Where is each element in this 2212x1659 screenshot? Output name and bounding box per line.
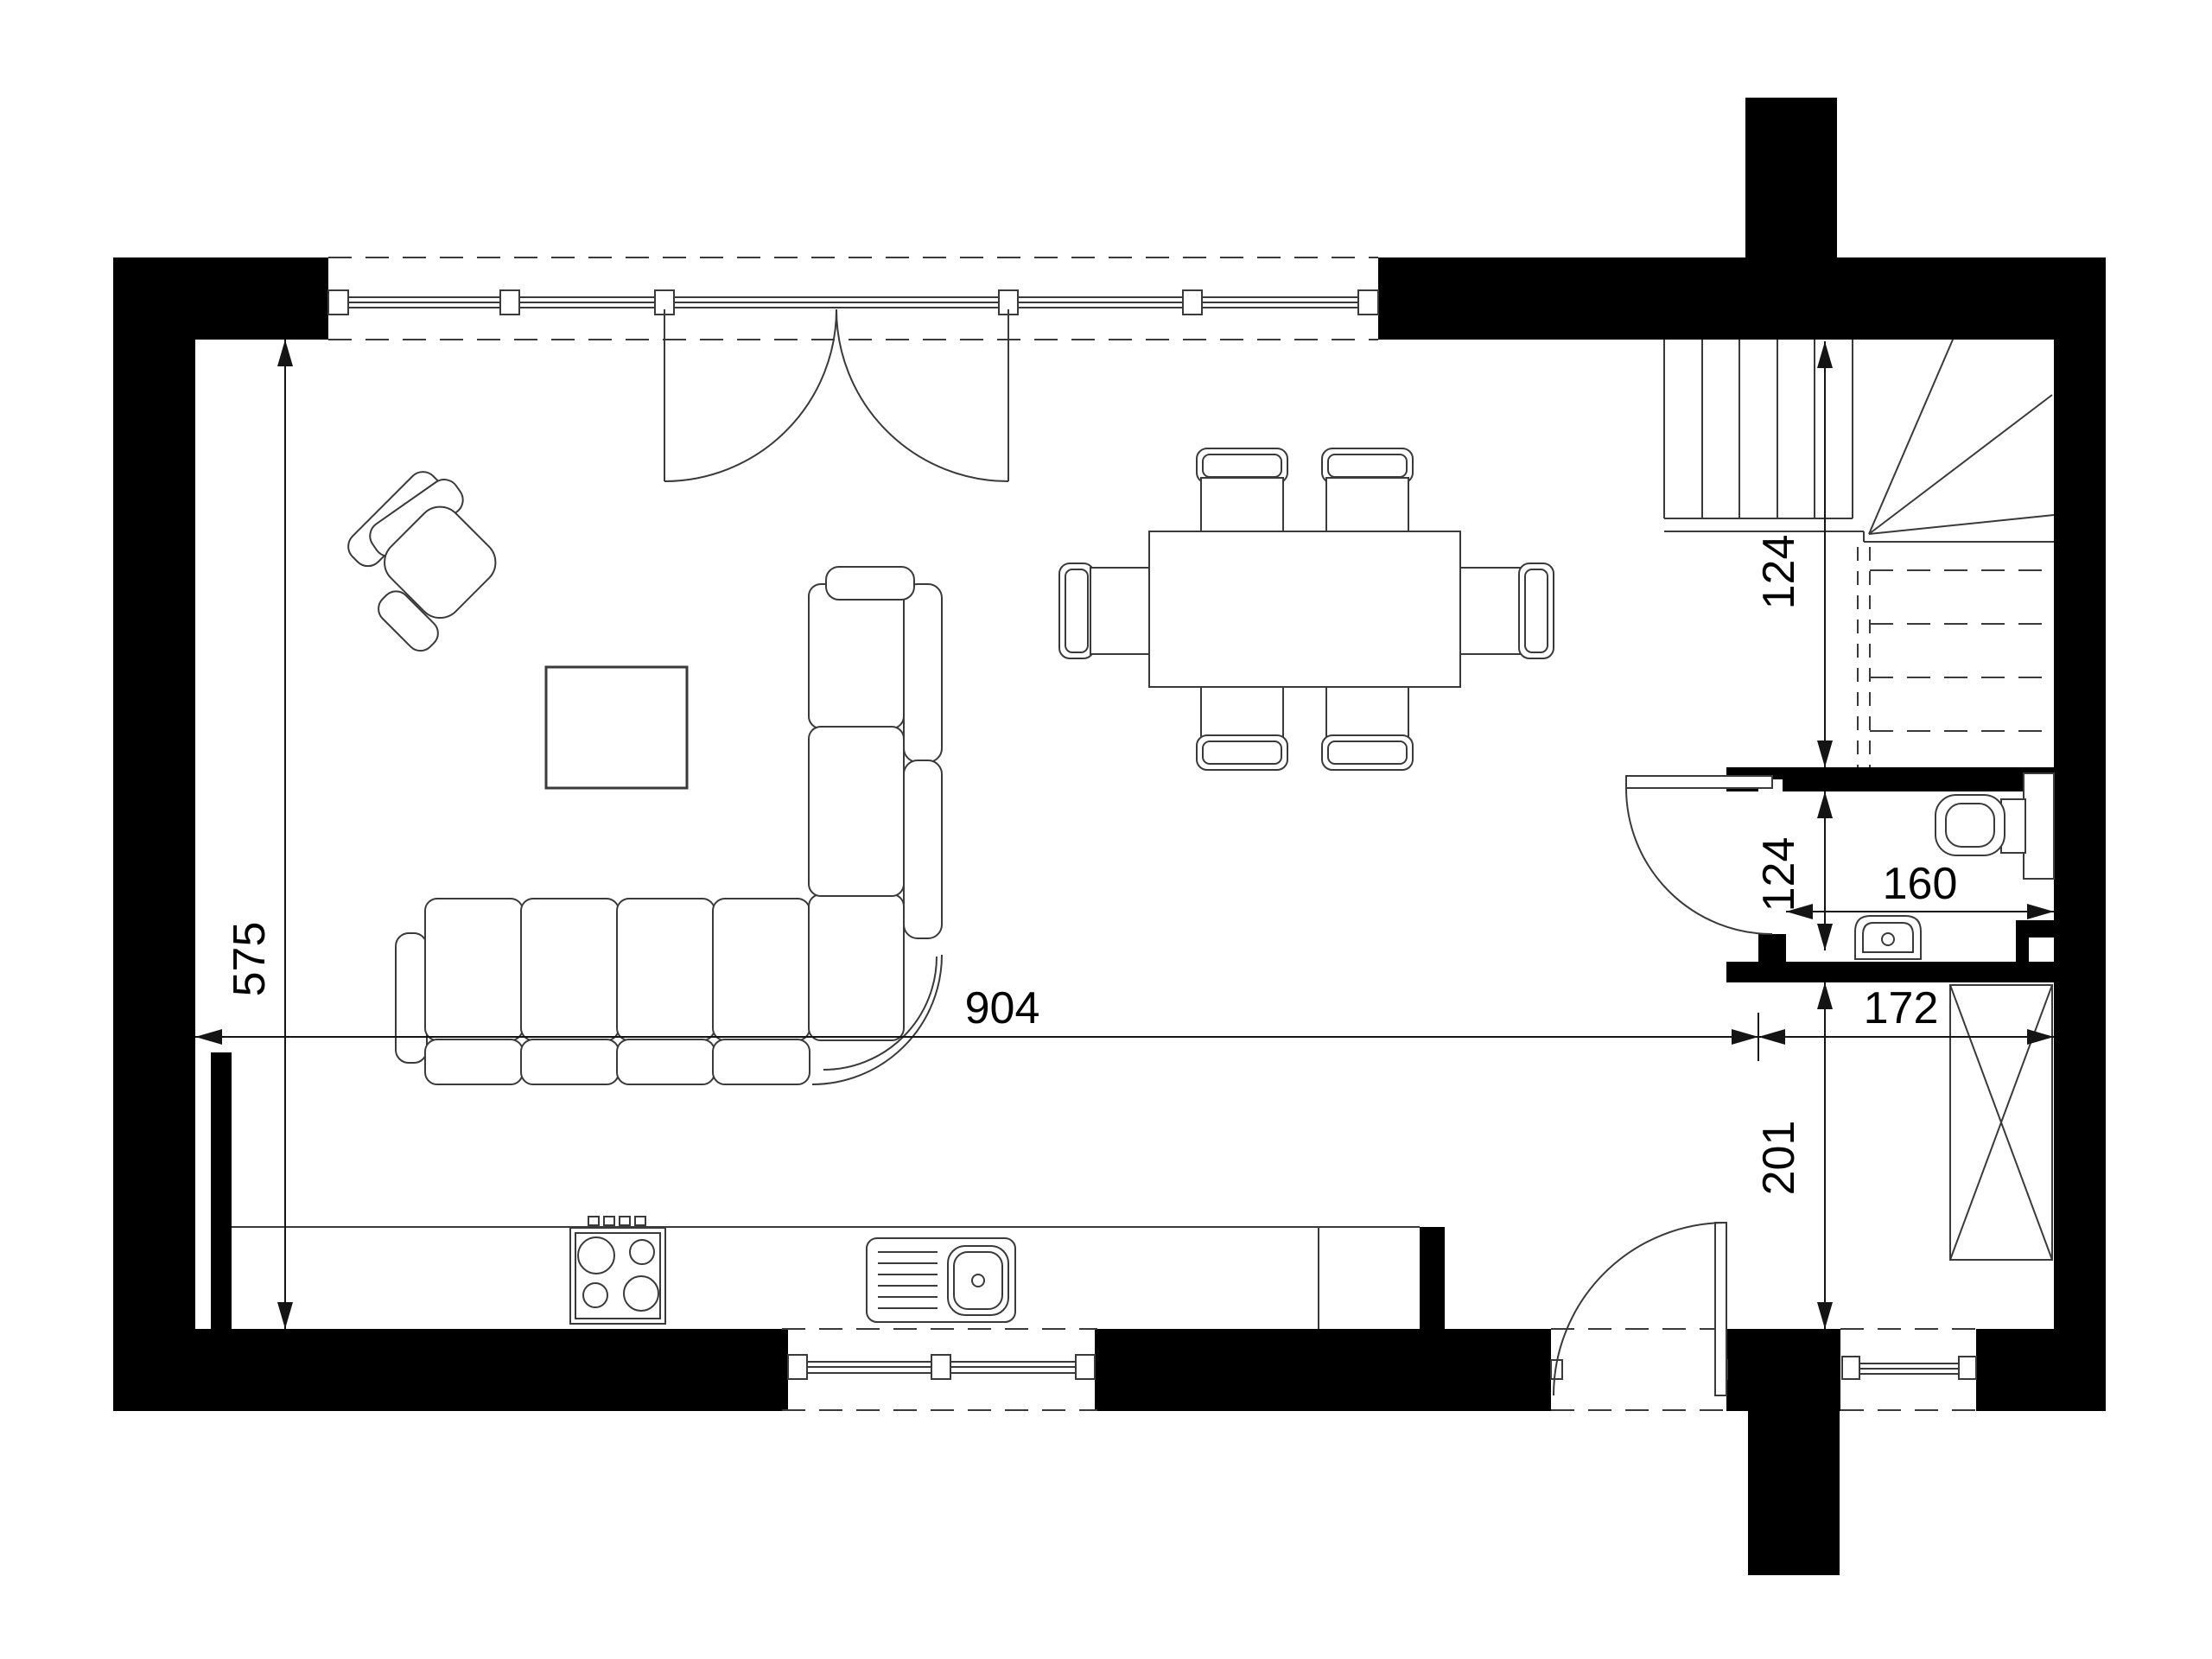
kitchen-run <box>232 1217 1445 1329</box>
dimension-124-bathroom: 124 <box>1754 791 1833 950</box>
sofa-back-cushion <box>617 1039 715 1084</box>
stove <box>570 1217 665 1324</box>
window-mullion <box>931 1355 950 1379</box>
bathroom-door <box>1626 776 1772 934</box>
winder-tread-line <box>1869 395 2052 534</box>
dining-set <box>1059 448 1554 770</box>
staircase <box>1664 340 2054 767</box>
entry-door-leaf <box>1715 1223 1726 1395</box>
sofa-corner-seat <box>809 894 904 1040</box>
kitchen-window <box>782 1329 1097 1410</box>
french-double-door <box>664 309 1008 481</box>
hall-window <box>1840 1329 1976 1410</box>
floor-plan-drawing: 575 904 172 124 124 160 201 <box>0 0 2212 1659</box>
kitchen-side-partition <box>211 1052 232 1329</box>
dimension-172: 172 <box>1758 983 2054 1061</box>
chimney-block <box>1745 98 1837 262</box>
sofa-back-cushion <box>425 1039 523 1084</box>
dim-label-124-stairs: 124 <box>1754 535 1804 610</box>
exterior-walls <box>113 98 2106 1575</box>
dining-chair-bottom-2 <box>1322 677 1413 770</box>
sink-unit <box>867 1238 1015 1322</box>
dining-chair-top-1 <box>1197 448 1287 542</box>
entry-porch-block <box>1748 1411 1840 1575</box>
bottom-wall-door-pier <box>1726 1329 1840 1411</box>
window-end-cap <box>788 1355 807 1379</box>
kitchen-sink <box>867 1238 1015 1322</box>
wardrobe <box>1950 985 2052 1260</box>
dim-label-904: 904 <box>965 983 1040 1033</box>
winder-tread-line <box>1869 340 1953 534</box>
bottom-wall-left <box>113 1329 788 1411</box>
dining-chair-top-2 <box>1322 448 1413 542</box>
dimension-124-stairs: 124 <box>1754 341 1833 767</box>
entry-door <box>1551 1223 1727 1410</box>
dim-label-160: 160 <box>1883 859 1958 909</box>
corner-sofa <box>396 567 942 1084</box>
chair-seat <box>1460 568 1524 654</box>
armchair <box>327 457 525 656</box>
window-end-cap <box>1358 290 1378 315</box>
coffee-table <box>546 667 687 788</box>
dimension-201: 201 <box>1754 982 1833 1329</box>
winder-tread-line <box>1869 515 2054 534</box>
window-end-cap <box>328 290 348 315</box>
window-end-cap <box>1842 1357 1859 1379</box>
dim-label-172: 172 <box>1864 983 1939 1033</box>
sofa-seat-cushion-vertical <box>809 727 904 896</box>
dimension-575: 575 <box>225 340 293 1329</box>
entry-door-swing-arc <box>1554 1223 1726 1395</box>
top-wall-right-segment <box>1378 257 2106 340</box>
dining-chair-left <box>1059 563 1154 658</box>
toilet-cistern-unit <box>2024 773 2054 879</box>
counter-end-stub <box>1420 1227 1445 1329</box>
sofa-seat-cushion <box>617 899 715 1040</box>
dimension-160: 160 <box>1786 859 2054 919</box>
dining-chair-right <box>1460 563 1554 658</box>
bottom-wall-mid <box>1095 1329 1551 1411</box>
sofa-seat-cushion <box>521 899 619 1040</box>
window-mullion <box>1183 290 1202 315</box>
right-wall <box>2054 257 2106 1411</box>
door-swing-arc-left <box>664 309 836 481</box>
bathroom-door-swing-arc <box>1626 788 1772 934</box>
sofa-right-back-cushion <box>904 584 942 762</box>
sofa-back-cushion <box>713 1039 810 1084</box>
dining-table <box>1149 531 1460 687</box>
sofa-left-armrest <box>396 933 427 1063</box>
bathroom-left-wall-stub <box>1758 934 1786 969</box>
chair-seat <box>1090 568 1154 654</box>
dim-label-575: 575 <box>225 922 275 997</box>
stove-knob <box>588 1217 599 1225</box>
window-mullion <box>500 290 519 315</box>
bottom-wall-corner <box>1976 1329 2106 1411</box>
sofa-right-back-cushion <box>904 760 942 938</box>
sofa-headrest-cushion <box>826 567 914 600</box>
stove-knob <box>604 1217 614 1225</box>
sofa-seat-cushion <box>713 899 810 1040</box>
sofa-back-cushion <box>521 1039 619 1084</box>
left-wall <box>113 257 195 1411</box>
window-end-cap <box>1959 1357 1976 1379</box>
dim-label-201: 201 <box>1754 1121 1804 1196</box>
sofa-seat-cushion-vertical <box>809 584 904 728</box>
stove-knob <box>635 1217 645 1225</box>
sofa-seat-cushion <box>425 899 523 1040</box>
floor-plan-page: 575 904 172 124 124 160 201 <box>0 0 2212 1659</box>
stove-knob <box>620 1217 630 1225</box>
bathroom-door-leaf <box>1626 776 1772 788</box>
basin <box>1855 916 1921 959</box>
door-swing-arc-right <box>836 309 1008 481</box>
chase-notch <box>2029 938 2054 962</box>
dining-chair-bottom-1 <box>1197 677 1287 770</box>
dim-label-124-bathroom: 124 <box>1754 837 1804 912</box>
window-end-cap <box>1076 1355 1095 1379</box>
